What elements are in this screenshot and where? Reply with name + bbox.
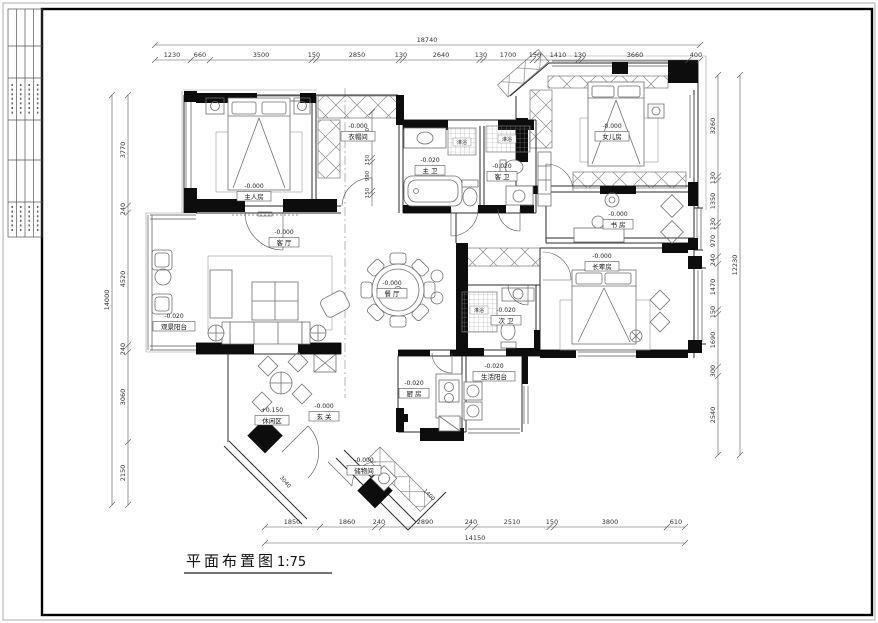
- svg-text:2540: 2540: [709, 407, 717, 424]
- svg-text:3800: 3800: [602, 518, 619, 526]
- room-label-cloak: -0.000衣帽间: [341, 123, 375, 141]
- drawing-scale-text: 1:75: [277, 555, 306, 570]
- svg-text:-0.000: -0.000: [274, 229, 294, 236]
- svg-text:客 厅: 客 厅: [276, 238, 292, 247]
- svg-text:储物间: 储物间: [354, 466, 374, 475]
- svg-text:2150: 2150: [119, 465, 127, 482]
- title-block-strip: [8, 9, 42, 237]
- svg-text:2890: 2890: [417, 518, 434, 526]
- svg-text:女儿房: 女儿房: [602, 132, 622, 141]
- svg-text:-0.000: -0.000: [314, 403, 334, 410]
- dim-total-bottom: 14150: [465, 534, 486, 542]
- svg-text:-0.000: -0.000: [602, 123, 622, 130]
- furniture: [152, 82, 683, 491]
- svg-text:主 卫: 主 卫: [422, 166, 438, 175]
- drawing-title-text: 平面布置图: [186, 552, 276, 570]
- dim-total-top: 18740: [417, 36, 438, 44]
- elder-bed: [560, 270, 670, 350]
- svg-text:-0.020: -0.020: [404, 380, 424, 387]
- shower-label-3: 淋浴: [470, 306, 488, 314]
- svg-text:生活阳台: 生活阳台: [481, 372, 507, 381]
- svg-text:150: 150: [365, 187, 371, 198]
- svg-text:610: 610: [670, 518, 682, 526]
- drawing-sheet: 18740 1230 660 3500 150 2850 130 2640 13…: [0, 0, 878, 623]
- svg-text:-0.020: -0.020: [492, 163, 512, 170]
- svg-text:1230: 1230: [164, 51, 181, 59]
- svg-text:淋浴: 淋浴: [502, 136, 512, 143]
- room-label-bath-master: -0.020主 卫: [415, 157, 445, 175]
- svg-text:3260: 3260: [709, 118, 717, 135]
- svg-text:-0.020: -0.020: [164, 313, 184, 320]
- svg-text:150: 150: [529, 51, 541, 59]
- svg-text:1860: 1860: [339, 518, 356, 526]
- svg-text:-0.000: -0.000: [244, 183, 264, 190]
- floor-plan-svg: 18740 1230 660 3500 150 2850 130 2640 13…: [0, 0, 878, 623]
- dim-total-left: 14000: [103, 290, 111, 311]
- svg-text:130: 130: [475, 51, 487, 59]
- svg-text:4520: 4520: [119, 271, 127, 288]
- svg-text:3660: 3660: [627, 51, 644, 59]
- dim-diagonal-left: 3040: [278, 475, 292, 490]
- svg-text:1700: 1700: [500, 51, 517, 59]
- svg-text:1470: 1470: [709, 279, 717, 296]
- drawing-title: 平面布置图 1:75: [184, 552, 332, 573]
- room-label-study: -0.000书 房: [603, 211, 633, 229]
- svg-text:1850: 1850: [284, 518, 301, 526]
- svg-text:240: 240: [119, 343, 127, 355]
- room-label-kitchen: -0.020厨 房: [399, 380, 429, 398]
- svg-text:-0.020: -0.020: [420, 157, 440, 164]
- svg-text:-0.000: -0.000: [592, 253, 612, 260]
- svg-text:观景阳台: 观景阳台: [161, 322, 187, 331]
- svg-text:厨 房: 厨 房: [406, 389, 421, 398]
- svg-text:990: 990: [365, 170, 371, 181]
- svg-text:休闲区: 休闲区: [262, 416, 282, 425]
- svg-text:1410: 1410: [550, 51, 567, 59]
- svg-text:书 房: 书 房: [610, 220, 625, 229]
- svg-text:150: 150: [365, 154, 371, 165]
- svg-text:-0.000: -0.000: [348, 123, 368, 130]
- svg-text:240: 240: [373, 518, 385, 526]
- svg-text:+0.150: +0.150: [261, 407, 283, 414]
- svg-text:长辈房: 长辈房: [592, 262, 612, 271]
- svg-text:3060: 3060: [119, 389, 127, 406]
- svg-text:660: 660: [194, 51, 206, 59]
- svg-text:-0.020: -0.020: [484, 363, 504, 370]
- svg-text:3500: 3500: [253, 51, 270, 59]
- room-label-elder: -0.000长辈房: [585, 253, 619, 271]
- sheet-frame: [3, 3, 875, 620]
- svg-text:-0.020: -0.020: [496, 307, 516, 314]
- svg-text:-0.000: -0.000: [382, 280, 402, 287]
- svg-text:240: 240: [709, 254, 717, 266]
- room-label-service-balcony: -0.020生活阳台: [473, 363, 515, 381]
- svg-text:150: 150: [308, 51, 320, 59]
- svg-text:1350: 1350: [709, 193, 717, 210]
- svg-text:130: 130: [709, 172, 717, 184]
- svg-text:2510: 2510: [504, 518, 521, 526]
- shower-label-2: 淋浴: [498, 135, 516, 143]
- svg-text:130: 130: [395, 51, 407, 59]
- svg-text:2640: 2640: [433, 51, 450, 59]
- room-label-foyer: -0.000玄 关: [309, 403, 339, 421]
- svg-text:次 卫: 次 卫: [498, 316, 514, 325]
- svg-text:淋浴: 淋浴: [474, 307, 484, 314]
- room-label-leisure: +0.150休闲区: [255, 407, 289, 425]
- dim-total-right: 12230: [731, 255, 739, 276]
- svg-text:130: 130: [709, 218, 717, 230]
- svg-text:客 卫: 客 卫: [494, 172, 510, 181]
- svg-text:衣帽间: 衣帽间: [348, 132, 368, 141]
- svg-text:130: 130: [574, 51, 586, 59]
- room-label-bath-second: -0.020次 卫: [491, 307, 521, 325]
- room-label-living: -0.000客 厅: [269, 229, 299, 247]
- svg-text:淋浴: 淋浴: [457, 139, 467, 146]
- svg-text:150: 150: [709, 306, 717, 318]
- svg-text:150: 150: [546, 518, 558, 526]
- svg-text:400: 400: [690, 51, 702, 59]
- daughter-bed: [580, 82, 664, 166]
- svg-text:240: 240: [465, 518, 477, 526]
- svg-text:970: 970: [709, 235, 717, 247]
- svg-text:-0.000: -0.000: [608, 211, 628, 218]
- svg-text:300: 300: [709, 365, 717, 377]
- svg-text:240: 240: [119, 203, 127, 215]
- svg-text:2850: 2850: [349, 51, 366, 59]
- svg-text:玄 关: 玄 关: [316, 412, 332, 421]
- shower-label-1: 淋浴: [453, 138, 471, 146]
- svg-text:-0.000: -0.000: [354, 457, 374, 464]
- svg-text:餐 厅: 餐 厅: [384, 289, 400, 298]
- svg-text:1690: 1690: [709, 332, 717, 349]
- room-label-view-balcony: -0.020观景阳台: [153, 313, 195, 331]
- svg-text:3770: 3770: [119, 142, 127, 159]
- living-furniture: [208, 256, 351, 344]
- svg-text:主人房: 主人房: [244, 192, 264, 201]
